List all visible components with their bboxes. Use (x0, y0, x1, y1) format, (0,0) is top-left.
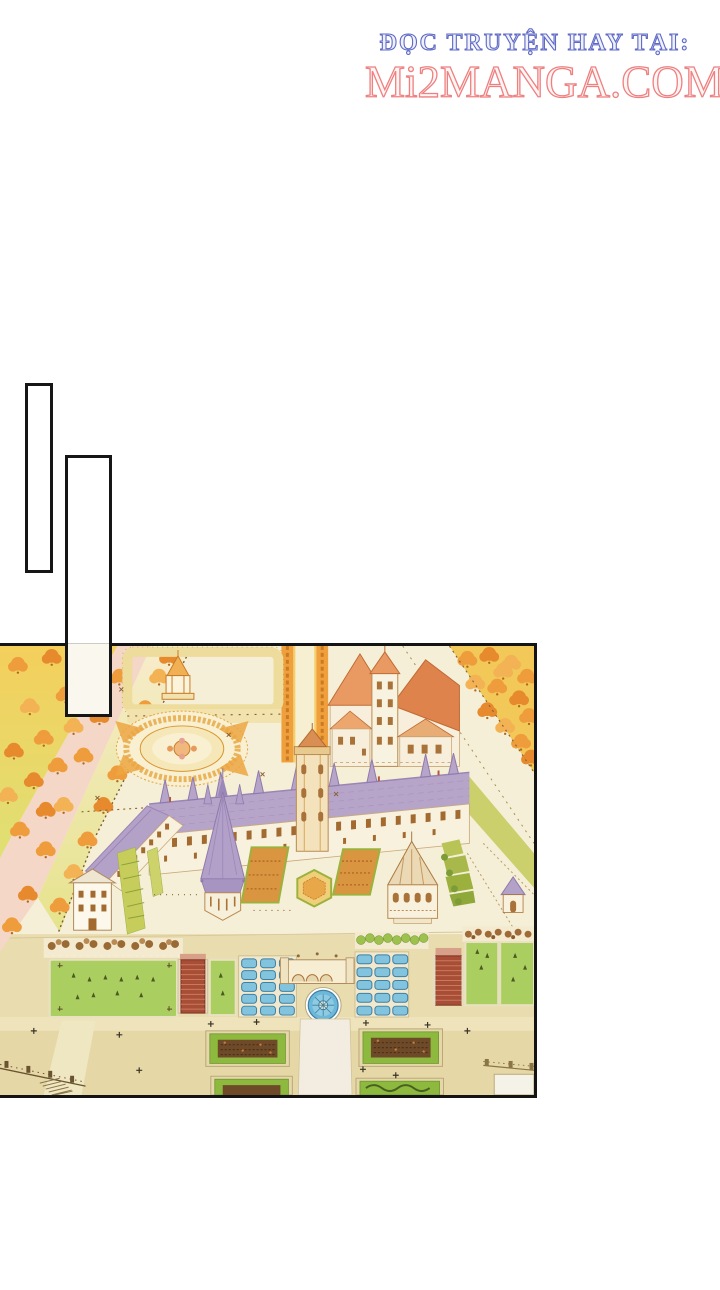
box-parterre-b (359, 1029, 443, 1066)
watermark-site-name: Mi2MANGA.COM (365, 58, 705, 106)
hedge-row-right (462, 926, 534, 942)
speech-bubble-1 (25, 383, 53, 573)
panel-border-seam (68, 643, 109, 644)
red-ramp-right (433, 948, 465, 1005)
lawn-strip (210, 960, 236, 1015)
red-stairs-left (178, 954, 208, 1013)
box-parterre-a (206, 1031, 290, 1067)
speech-bubble-2 (65, 455, 112, 717)
box-parterre-a2 (211, 1076, 293, 1095)
lawn-right (465, 942, 534, 1005)
box-parterre-b2 (356, 1078, 444, 1095)
oval-parterre (115, 711, 248, 786)
round-fountain (305, 987, 341, 1023)
lawn-left (50, 960, 177, 1017)
lower-terrace-landing (494, 1074, 534, 1095)
water-parterre-right (355, 952, 409, 1017)
hedge-green-row (355, 932, 429, 949)
hedge-row-left (44, 938, 183, 958)
watermark-header: ĐỌC TRUYỆN HAY TẠI: Mi2MANGA.COM (365, 30, 705, 106)
central-path (298, 1019, 352, 1095)
watermark-tagline: ĐỌC TRUYỆN HAY TẠI: (365, 30, 705, 56)
